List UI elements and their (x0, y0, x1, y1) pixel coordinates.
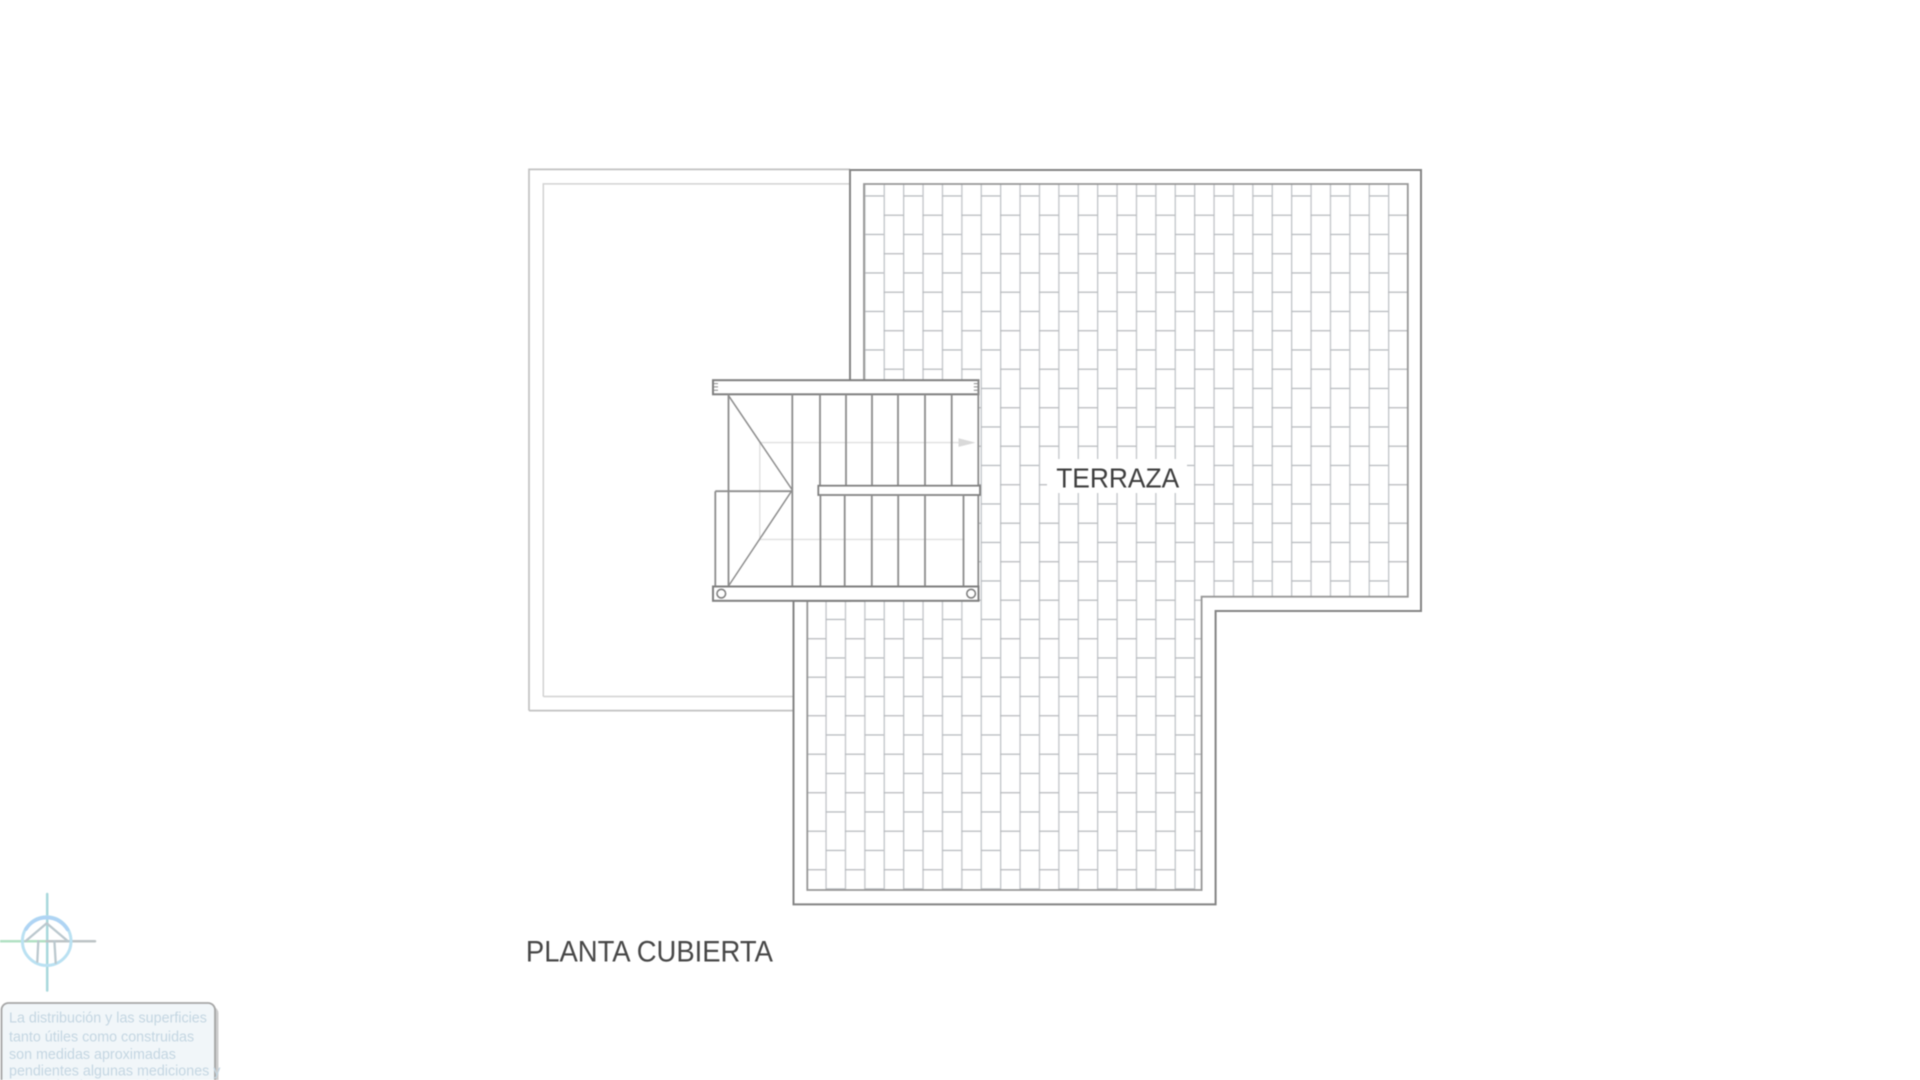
svg-text:son medidas aproximadas: son medidas aproximadas (9, 1047, 176, 1063)
svg-text:PLANTA CUBIERTA: PLANTA CUBIERTA (526, 935, 773, 968)
svg-text:TERRAZA: TERRAZA (1056, 463, 1179, 494)
svg-text:La distribución y las superfic: La distribución y las superficies (9, 1011, 207, 1027)
svg-text:pendientes algunas mediciones: pendientes algunas mediciones y (9, 1064, 221, 1080)
svg-text:tanto útiles como construidas: tanto útiles como construidas (9, 1030, 194, 1046)
